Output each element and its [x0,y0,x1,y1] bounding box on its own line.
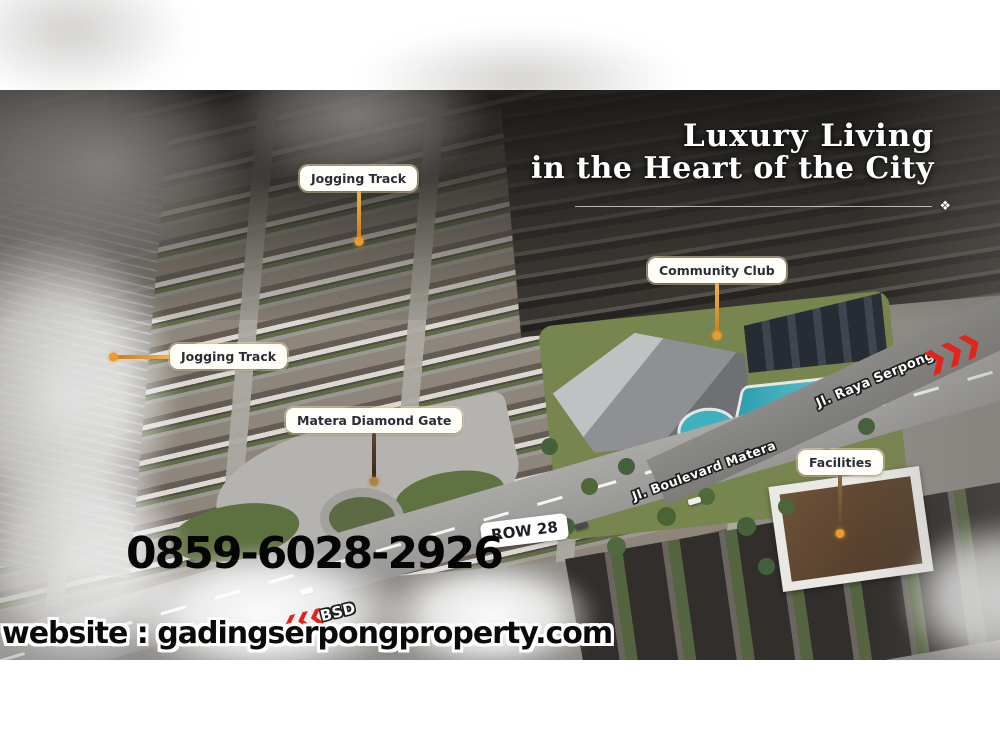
phone-number: 0859-6028-2926 [126,528,502,579]
headline-line1: Luxury Living [531,120,934,153]
road-label-raya-serpong: Jl. Raya Serpong [814,348,936,411]
pin-dot [370,477,379,486]
pin-jogging-track-left: Jogging Track [114,344,287,369]
pin-stem [838,475,842,533]
chevron-right-icon [958,331,984,361]
divider-line [575,206,932,207]
pin-jogging-track-top: Jogging Track [300,166,417,241]
pin-facilities: Facilities [798,450,883,533]
pin-dot [836,529,845,538]
headline: Luxury Living in the Heart of the City [531,120,934,186]
pin-dot [109,352,118,361]
pin-label: Community Club [648,258,786,283]
pin-label: Jogging Track [300,166,417,191]
website-text: website : gadingserpongproperty.com [2,616,612,651]
pin-label: Matera Diamond Gate [286,408,462,433]
pin-dot [354,237,363,246]
road-label-boulevard-matera: Jl. Boulevard Matera [630,437,778,503]
chevron-right-icon [923,346,949,376]
pin-label: Jogging Track [170,344,287,369]
headline-divider: ❖ [575,199,951,214]
chevron-right-icon [941,339,967,369]
headline-line2: in the Heart of the City [531,153,934,185]
pin-stem [114,355,170,359]
pin-dot [712,331,721,340]
pin-stem [357,191,361,241]
pin-stem [715,283,719,335]
pin-community-club: Community Club [648,258,786,335]
pin-matera-diamond-gate: Matera Diamond Gate [286,408,462,481]
overlay-layer: Luxury Living in the Heart of the City ❖… [0,0,1000,750]
pin-stem [372,433,376,481]
pin-label: Facilities [798,450,883,475]
ornament-icon: ❖ [939,199,951,214]
property-advertisement: Luxury Living in the Heart of the City ❖… [0,0,1000,750]
chevrons-right-icon [923,331,983,376]
